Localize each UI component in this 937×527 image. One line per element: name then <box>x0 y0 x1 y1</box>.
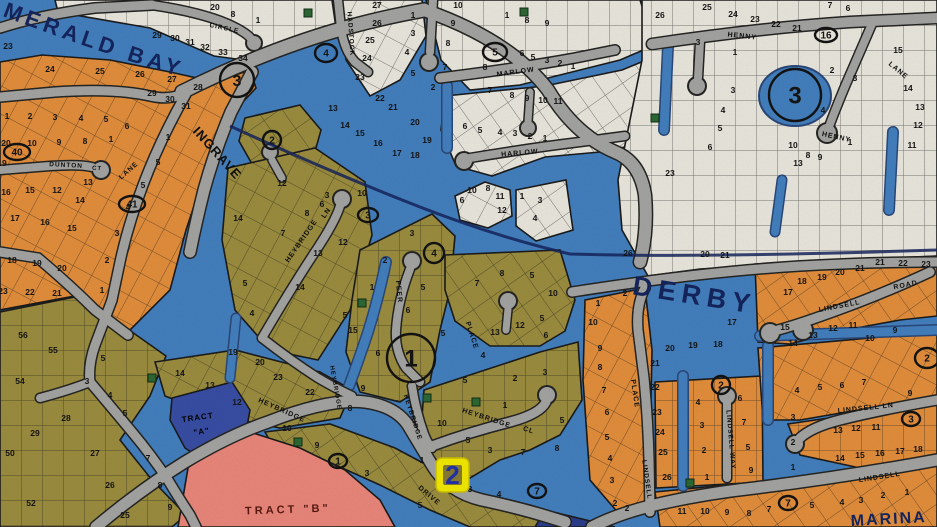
scan-grain-overlay <box>0 0 937 527</box>
plat-map-viewport[interactable]: 2324252627282930311234561552010981191615… <box>0 0 937 527</box>
plat-map-canvas[interactable]: 2324252627282930311234561552010981191615… <box>0 0 937 527</box>
